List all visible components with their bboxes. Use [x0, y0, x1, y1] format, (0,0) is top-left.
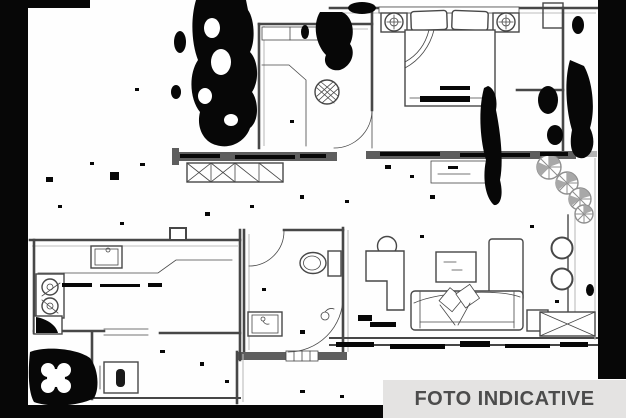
plant-icon — [575, 205, 593, 223]
bathroom-sink-icon — [248, 312, 282, 336]
living-room-furniture — [366, 161, 548, 331]
pillow — [452, 10, 489, 30]
plant-icon — [537, 155, 561, 179]
toilet-icon — [300, 251, 341, 276]
bottom-black-bar — [0, 405, 385, 418]
tv-unit — [431, 161, 487, 183]
balcony-chair-icon — [552, 269, 573, 290]
stove-icon — [36, 274, 64, 318]
floorplan-svg — [0, 0, 626, 418]
pillow — [411, 10, 448, 30]
floorplan-image: FOTO INDICATIVE — [0, 0, 626, 418]
entry-round-table-icon — [315, 80, 339, 104]
window-crossed-box — [540, 312, 595, 336]
washing-machine-icon — [100, 362, 138, 393]
banner-label: FOTO INDICATIVE — [414, 388, 594, 411]
scan-noise — [29, 0, 594, 405]
photo-indicative-banner: FOTO INDICATIVE — [383, 380, 626, 418]
door-threshold — [286, 351, 318, 361]
terrace-fixtures — [100, 362, 138, 393]
coffee-table-icon — [436, 252, 476, 282]
walls — [30, 3, 598, 403]
top-black-strip — [28, 0, 90, 8]
kitchen-sink-icon — [91, 246, 122, 268]
bathroom-fixtures — [248, 251, 343, 352]
shower-icon — [288, 297, 343, 352]
balcony-chair-icon — [552, 238, 573, 259]
right-black-bar — [598, 0, 626, 379]
kitchen-fixtures — [34, 246, 232, 334]
corner-cabinet-icon — [34, 316, 62, 334]
double-bed-icon — [405, 10, 495, 106]
desk-unit — [366, 251, 404, 310]
nightstand-left — [381, 13, 407, 32]
entry-counter — [262, 65, 306, 146]
left-black-bar — [0, 0, 28, 418]
sofa-icon — [411, 284, 523, 330]
nightstand-right — [493, 13, 519, 32]
balcony-fixtures — [537, 155, 595, 336]
bedroom-furniture — [379, 7, 519, 106]
counter-edge — [38, 260, 232, 273]
headboard — [379, 7, 519, 13]
bedroom-door — [334, 110, 372, 148]
bathroom-door — [249, 231, 284, 266]
wardrobe-crossed-boxes — [187, 163, 283, 182]
